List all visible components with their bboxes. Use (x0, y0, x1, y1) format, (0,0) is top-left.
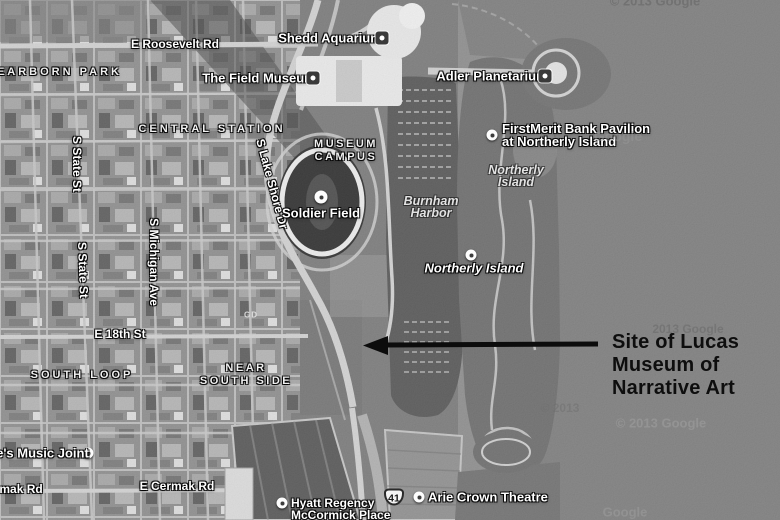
poi-label-northerly-island[interactable]: Northerly Island (425, 261, 524, 276)
museum-campus-line1: MUSEUM (314, 138, 378, 151)
poi-label-field-museum[interactable]: The Field Museum (202, 71, 315, 86)
poi-label-soldier-field[interactable]: Soldier Field (282, 206, 360, 221)
poi-label-shedd-aquarium[interactable]: Shedd Aquarium (278, 31, 382, 46)
annotation-line3: Narrative Art (612, 377, 739, 400)
road-label-cermak: E Cermak Rd (140, 479, 215, 493)
museum-campus-line2: CAMPUS (314, 151, 378, 164)
hyatt-line2: McCormick Place (291, 509, 390, 520)
area-label-dearborn-park: DEARBORN PARK (0, 66, 122, 78)
area-label-central-station: CENTRAL STATION (138, 123, 285, 135)
burnham-line2: Harbor (404, 207, 459, 219)
map-screenshot: E Roosevelt Rd E 18th St E Cermak Rd E C… (0, 0, 780, 520)
area-label-south-loop: SOUTH LOOP (31, 369, 134, 381)
water-label-northerly-island: Northerly Island (488, 164, 544, 188)
road-label-roosevelt: E Roosevelt Rd (131, 37, 219, 51)
poi-label-adler-planetarium[interactable]: Adler Planetarium (436, 69, 547, 84)
watermark-top-right: © 2013 Google (610, 0, 701, 9)
road-label-18th: E 18th St (94, 327, 145, 341)
near-south-side-line2: SOUTH SIDE (200, 375, 292, 388)
road-label-michigan: S Michigan Ave (147, 218, 161, 306)
watermark-right: 2013 Google (652, 322, 723, 336)
road-label-cermak-partial: E Cermak Rd (0, 482, 43, 496)
watermark-bottom-right: Google (603, 505, 648, 520)
near-south-side-line1: NEAR (200, 362, 292, 375)
watermark-lower-right: © 2013 Google (616, 416, 707, 431)
hyatt-marker[interactable] (277, 498, 288, 509)
arie-crown-marker[interactable] (414, 492, 425, 503)
shedd-aquarium-poi-icon[interactable] (376, 32, 389, 45)
satellite-map-canvas[interactable] (0, 0, 780, 520)
road-label-state-south: S State St (75, 242, 91, 298)
adler-planetarium-poi-icon[interactable] (539, 70, 552, 83)
area-label-museum-campus: MUSEUM CAMPUS (314, 138, 378, 164)
firstmerit-pavilion-marker[interactable] (487, 130, 498, 141)
soldier-field-marker[interactable] (315, 191, 328, 204)
area-label-near-south-side: NEAR SOUTH SIDE (200, 362, 292, 388)
northerly-area-line2: Island (488, 176, 544, 188)
watermark-center: © 2013 (541, 401, 580, 415)
lucas-museum-annotation: Site of Lucas Museum of Narrative Art (612, 331, 739, 400)
poi-label-arie-crown[interactable]: Arie Crown Theatre (428, 490, 548, 505)
road-label-state-north: S State St (70, 136, 84, 192)
annotation-line2: Museum of (612, 354, 739, 377)
poi-label-reggies[interactable]: Reggie's Music Joint (0, 446, 89, 461)
film-grain (0, 0, 780, 520)
watermark-mid-right: Google (594, 128, 642, 144)
field-museum-poi-icon[interactable] (307, 72, 320, 85)
water-label-burnham-harbor: Burnham Harbor (404, 195, 459, 219)
poi-label-hyatt[interactable]: Hyatt Regency McCormick Place (291, 497, 390, 520)
rooftop-text: GD (244, 311, 258, 320)
northerly-island-marker[interactable] (466, 250, 477, 261)
